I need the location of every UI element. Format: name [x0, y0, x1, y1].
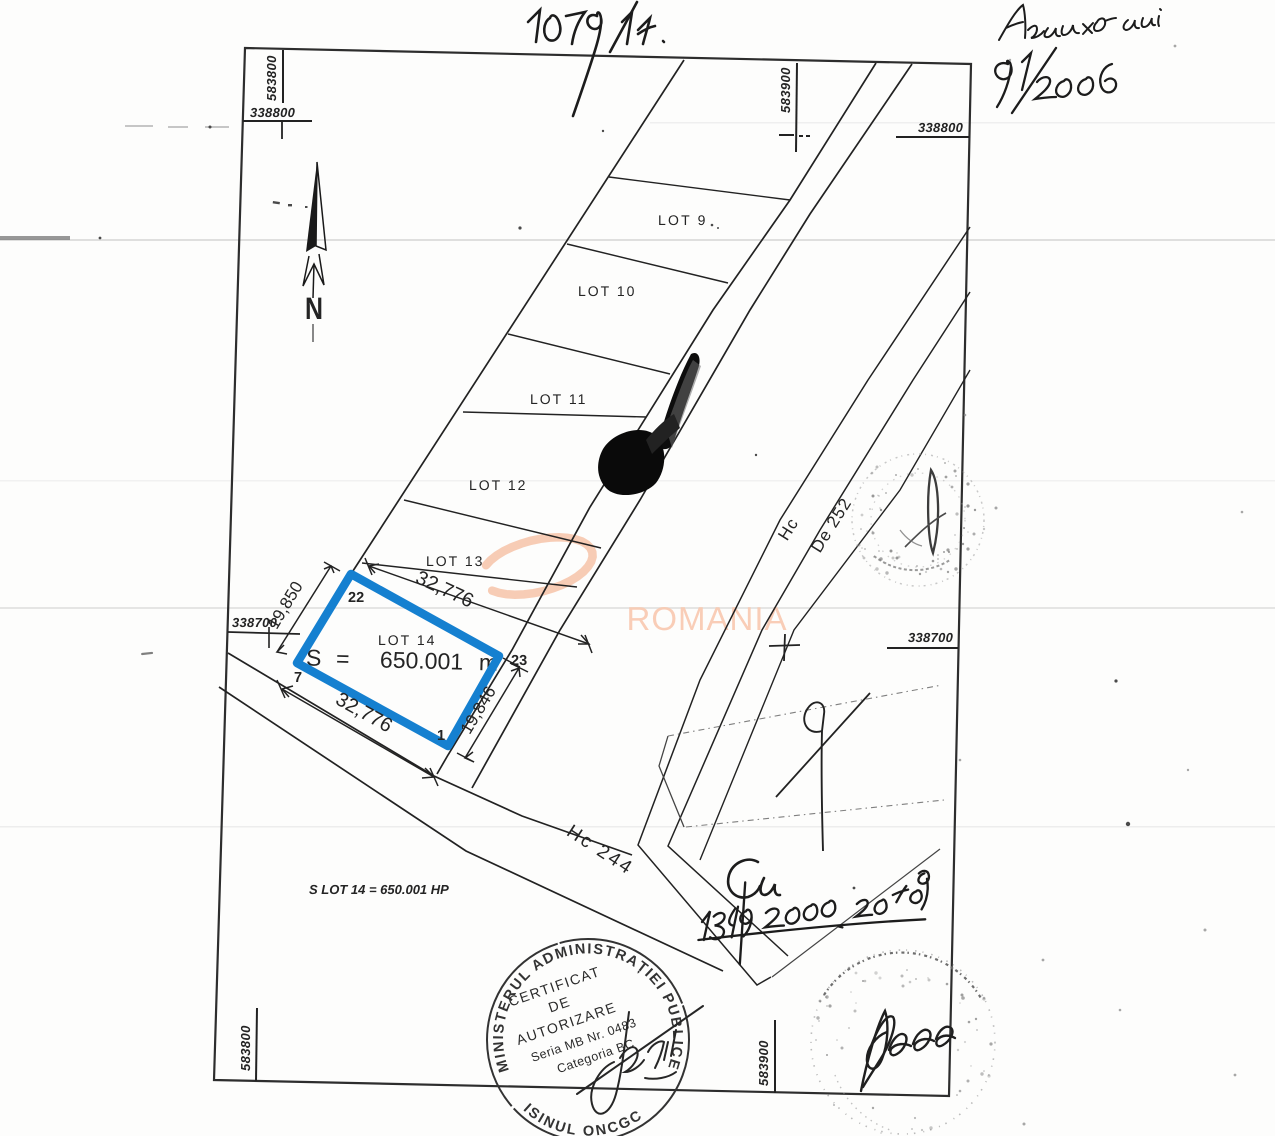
- svg-text:LOT 9: LOT 9: [658, 212, 708, 228]
- svg-text:338700: 338700: [908, 630, 954, 645]
- svg-text:32,776: 32,776: [412, 567, 477, 613]
- svg-text:LOT 14: LOT 14: [378, 632, 436, 648]
- svg-text:583900: 583900: [756, 1040, 771, 1086]
- svg-text:LOT 11: LOT 11: [530, 391, 587, 407]
- svg-text:583800: 583800: [264, 55, 279, 101]
- svg-text:ISINUL ONCGC: ISINUL ONCGC: [520, 1101, 646, 1136]
- svg-text:ROMANIA: ROMANIA: [626, 600, 787, 637]
- svg-text:7: 7: [294, 670, 302, 686]
- svg-text:583800: 583800: [238, 1025, 253, 1071]
- svg-text:N: N: [305, 291, 323, 326]
- svg-text:LOT 13: LOT 13: [426, 553, 484, 569]
- svg-text:19,850: 19,850: [264, 578, 307, 632]
- svg-text:De 252: De 252: [807, 494, 855, 556]
- svg-text:Hc: Hc: [774, 514, 802, 543]
- svg-text:=: =: [336, 645, 350, 671]
- svg-text:1: 1: [437, 728, 445, 744]
- svg-text:583900: 583900: [778, 67, 793, 113]
- svg-text:LOT 12: LOT 12: [469, 477, 527, 493]
- svg-text:338800: 338800: [250, 105, 296, 120]
- svg-text:338800: 338800: [918, 120, 964, 135]
- svg-text:DE: DE: [546, 993, 572, 1015]
- svg-text:650.001: 650.001: [380, 646, 464, 674]
- svg-text:22: 22: [348, 590, 364, 606]
- svg-text:S LOT 14 = 650.001 HP: S LOT 14 = 650.001 HP: [309, 882, 449, 897]
- svg-text:LOT 10: LOT 10: [578, 283, 636, 299]
- svg-text:Hc 244: Hc 244: [563, 821, 638, 880]
